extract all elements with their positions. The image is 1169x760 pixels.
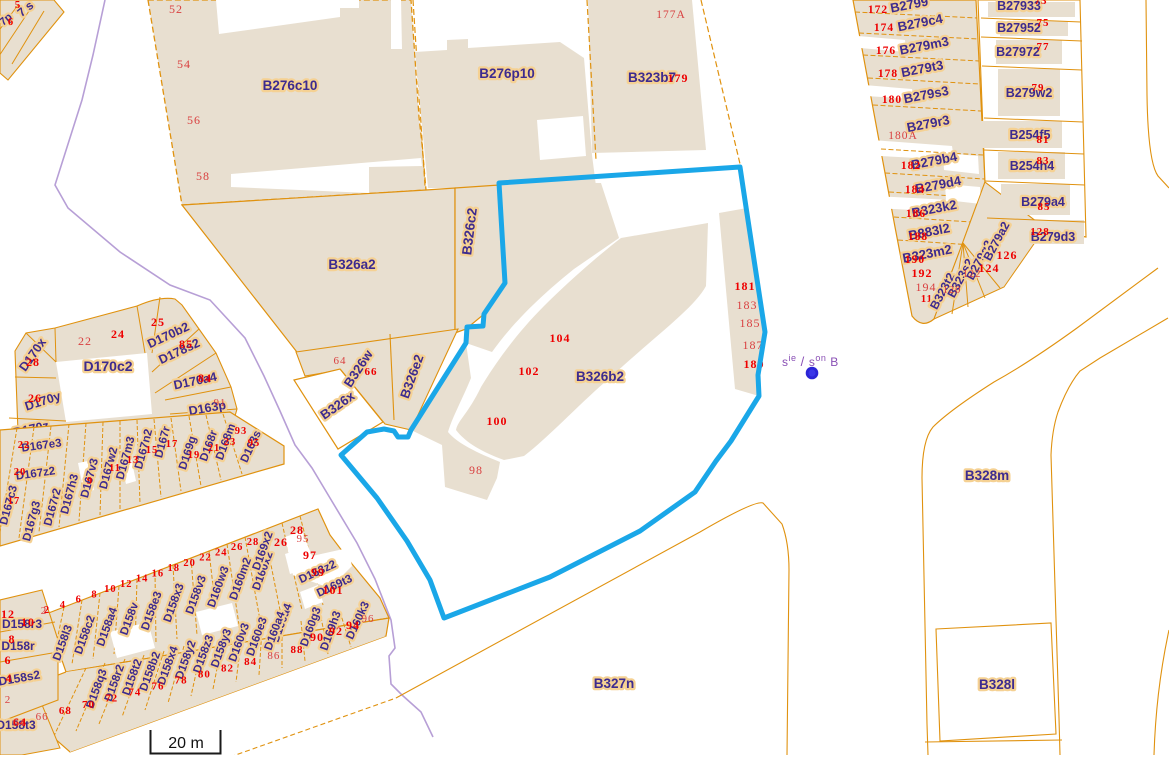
- svg-text:84: 84: [198, 371, 212, 385]
- svg-text:17: 17: [166, 439, 179, 450]
- svg-text:22: 22: [78, 334, 92, 348]
- svg-text:54: 54: [177, 57, 191, 71]
- svg-text:72: 72: [105, 693, 118, 705]
- svg-text:80: 80: [198, 668, 211, 680]
- svg-text:83: 83: [1037, 155, 1050, 167]
- svg-text:185: 185: [740, 316, 761, 330]
- svg-text:4: 4: [60, 600, 66, 611]
- svg-text:12: 12: [120, 579, 133, 590]
- svg-text:B328l: B328l: [979, 677, 1015, 692]
- svg-text:16: 16: [152, 568, 165, 579]
- svg-text:B27972: B27972: [996, 45, 1040, 59]
- svg-text:95: 95: [297, 533, 310, 545]
- svg-text:6: 6: [8, 17, 14, 28]
- svg-text:10: 10: [21, 615, 35, 629]
- svg-text:10: 10: [104, 584, 117, 595]
- svg-text:22: 22: [18, 440, 31, 451]
- svg-text:4: 4: [6, 671, 13, 685]
- svg-text:73: 73: [1035, 0, 1048, 7]
- svg-text:9: 9: [87, 476, 93, 487]
- svg-text:12: 12: [1, 607, 15, 621]
- svg-text:179: 179: [668, 71, 689, 85]
- svg-text:78: 78: [175, 674, 188, 686]
- svg-text:6: 6: [5, 653, 12, 667]
- svg-text:76: 76: [152, 681, 165, 693]
- svg-text:21: 21: [208, 443, 221, 454]
- svg-text:26: 26: [274, 535, 288, 549]
- svg-text:90: 90: [310, 630, 324, 644]
- svg-text:104: 104: [550, 331, 571, 345]
- svg-text:D170c2: D170c2: [83, 358, 132, 374]
- svg-text:B276p10: B276p10: [479, 66, 535, 81]
- svg-text:26: 26: [231, 542, 244, 553]
- svg-text:183: 183: [737, 298, 758, 312]
- svg-text:124: 124: [979, 261, 1000, 275]
- svg-text:28: 28: [247, 537, 260, 548]
- svg-text:182: 182: [901, 160, 921, 172]
- svg-text:26: 26: [28, 391, 42, 405]
- svg-text:2: 2: [44, 605, 50, 616]
- svg-text:95: 95: [248, 438, 261, 449]
- svg-text:84: 84: [244, 656, 257, 668]
- svg-text:126: 126: [997, 248, 1018, 262]
- svg-text:79: 79: [1032, 82, 1045, 94]
- svg-text:94: 94: [346, 618, 360, 632]
- svg-text:82: 82: [221, 662, 234, 674]
- svg-text:D158r: D158r: [1, 639, 35, 653]
- svg-text:186: 186: [906, 208, 926, 220]
- svg-text:56: 56: [187, 113, 201, 127]
- svg-text:B279w2: B279w2: [1006, 86, 1053, 100]
- svg-text:181: 181: [735, 279, 756, 293]
- svg-text:70: 70: [82, 699, 95, 711]
- svg-text:86: 86: [267, 650, 280, 662]
- svg-text:23: 23: [224, 437, 237, 448]
- svg-text:190: 190: [905, 254, 925, 266]
- svg-text:B276c10: B276c10: [263, 78, 318, 93]
- svg-text:176: 176: [876, 45, 896, 57]
- svg-text:64: 64: [334, 355, 347, 367]
- svg-text:22: 22: [199, 553, 212, 564]
- svg-text:18: 18: [168, 563, 181, 574]
- svg-text:20 m: 20 m: [168, 735, 204, 752]
- svg-text:20: 20: [183, 558, 196, 569]
- svg-text:120: 120: [943, 285, 962, 296]
- svg-text:92: 92: [329, 624, 343, 638]
- svg-text:99: 99: [311, 565, 325, 579]
- svg-text:74: 74: [128, 687, 141, 699]
- svg-text:B327n: B327n: [594, 676, 635, 691]
- svg-text:8: 8: [9, 632, 16, 646]
- svg-text:6: 6: [76, 595, 82, 606]
- svg-text:13: 13: [127, 455, 140, 466]
- svg-text:178: 178: [878, 68, 898, 80]
- svg-text:24: 24: [111, 327, 125, 341]
- svg-text:52: 52: [169, 2, 183, 16]
- svg-text:8: 8: [91, 589, 97, 600]
- svg-text:B326b2: B326b2: [576, 369, 624, 384]
- svg-text:14: 14: [136, 574, 149, 585]
- svg-text:15: 15: [146, 445, 159, 456]
- svg-text:184: 184: [905, 184, 925, 196]
- svg-text:91: 91: [214, 398, 227, 409]
- svg-text:B326a2: B326a2: [328, 257, 375, 272]
- svg-text:172: 172: [868, 4, 888, 16]
- svg-text:17: 17: [8, 496, 21, 507]
- svg-text:B328m: B328m: [965, 468, 1009, 483]
- svg-text:97: 97: [303, 548, 317, 562]
- svg-text:102: 102: [519, 364, 540, 378]
- svg-text:174: 174: [874, 22, 894, 34]
- svg-text:180A: 180A: [888, 130, 918, 142]
- svg-text:96: 96: [362, 613, 375, 625]
- svg-text:20: 20: [14, 467, 27, 478]
- svg-text:180: 180: [882, 94, 902, 106]
- svg-text:5: 5: [15, 0, 22, 11]
- svg-text:64: 64: [13, 717, 26, 729]
- svg-text:188: 188: [908, 231, 928, 243]
- svg-text:88: 88: [291, 644, 304, 656]
- svg-text:177A: 177A: [656, 9, 686, 21]
- svg-text:66: 66: [365, 366, 378, 378]
- svg-text:25: 25: [151, 315, 165, 329]
- svg-text:85: 85: [179, 337, 193, 351]
- svg-text:101: 101: [323, 583, 344, 597]
- svg-text:2: 2: [5, 694, 12, 706]
- svg-text:B27952: B27952: [997, 21, 1041, 35]
- svg-text:100: 100: [487, 414, 508, 428]
- svg-text:192: 192: [912, 266, 933, 280]
- svg-text:28: 28: [26, 355, 40, 369]
- svg-text:11: 11: [109, 463, 121, 474]
- svg-text:24: 24: [215, 547, 228, 558]
- svg-text:58: 58: [196, 169, 210, 183]
- svg-text:85: 85: [1038, 201, 1051, 213]
- svg-text:77: 77: [1037, 41, 1050, 53]
- svg-text:66: 66: [36, 711, 49, 723]
- svg-text:81: 81: [1037, 134, 1050, 146]
- svg-text:68: 68: [59, 705, 72, 717]
- svg-text:128: 128: [1030, 226, 1050, 238]
- svg-text:98: 98: [469, 463, 483, 477]
- svg-text:75: 75: [1037, 17, 1050, 29]
- svg-text:93: 93: [235, 426, 248, 437]
- svg-text:19: 19: [188, 450, 201, 461]
